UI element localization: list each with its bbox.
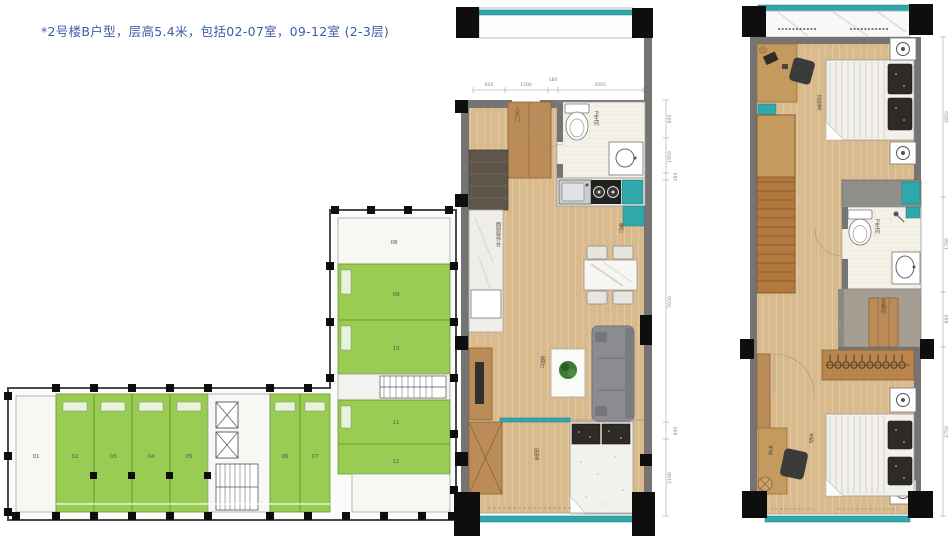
dim-label: 1780	[944, 238, 950, 250]
fridge-icon	[622, 180, 643, 204]
dimension-chain-right: 600 1950 180 5030 600 2190	[663, 100, 679, 516]
chair-icon	[587, 246, 607, 259]
dim-label: 600	[667, 115, 673, 124]
corner-column	[909, 4, 933, 35]
unit-label: 08	[390, 240, 398, 246]
corner-column	[908, 491, 933, 518]
sink-icon	[559, 180, 591, 204]
wardrobe-icon	[469, 422, 502, 494]
desk-label: 书桌	[767, 444, 773, 456]
left-storage-block	[469, 150, 508, 210]
master-bedroom-label: 主卧	[808, 432, 814, 444]
appliance-icon	[902, 182, 920, 204]
unit-label: 07	[311, 454, 319, 460]
sofa-icon	[592, 326, 634, 421]
pillow	[888, 64, 912, 94]
dimension-chain-right: 2850 1780 890 2750	[940, 37, 950, 516]
unit-label: 11	[392, 420, 400, 426]
balcony-glass	[758, 5, 914, 11]
second-bedroom-label: 次卧室	[816, 94, 822, 110]
key-units-02-05: 02 03 04 05	[56, 394, 208, 512]
chair-icon	[613, 246, 633, 259]
unit-label: 09	[392, 292, 400, 298]
unit-label: 12	[392, 459, 399, 465]
bathroom-label: 卫生间	[593, 111, 599, 127]
dim-label: 1500	[520, 82, 532, 88]
dim-label: 180	[549, 77, 558, 83]
unit-label: 02	[71, 454, 78, 460]
top-balcony	[742, 4, 933, 37]
toilet-icon	[565, 104, 589, 140]
chair-icon	[587, 291, 607, 304]
dim-label: 600	[673, 427, 679, 436]
dim-label: 180	[673, 173, 679, 182]
upper-level-plan: 次卧室 卫生间	[738, 2, 952, 536]
dim-label: 2750	[944, 426, 950, 438]
dim-label: 1950	[667, 151, 673, 163]
entry: 入户门	[508, 102, 551, 178]
unit-label: 04	[147, 454, 155, 460]
dim-label: 5030	[667, 296, 673, 308]
key-core	[208, 394, 270, 512]
key-wing: 08 09 10 11 12	[338, 218, 450, 512]
pillow	[572, 424, 600, 444]
dim-label: 3000	[594, 82, 606, 88]
bed-icon	[826, 60, 914, 140]
entry-door-label: 入户门	[514, 107, 520, 123]
stove-icon	[591, 180, 621, 204]
unit-label: 05	[185, 454, 193, 460]
corner-column	[456, 7, 479, 38]
balcony-glass	[765, 516, 910, 522]
chair-icon	[613, 291, 633, 304]
coffee-table	[551, 349, 585, 397]
unit-label: 10	[392, 346, 400, 352]
dim-label: 890	[944, 315, 950, 324]
west-kitchen-counter: 西厨操作台	[469, 210, 503, 332]
wardrobe-icon	[822, 350, 914, 380]
corner-column	[742, 491, 767, 518]
bathroom-label: 卫生间	[874, 219, 880, 235]
corner-room	[352, 474, 450, 512]
toilet-icon	[848, 210, 872, 245]
pillow	[888, 98, 912, 130]
tv-cabinet	[469, 348, 492, 420]
left-wall	[750, 37, 757, 518]
pillow	[888, 457, 912, 485]
corner-column	[632, 492, 655, 536]
pillow	[888, 421, 912, 449]
nightstand-icon	[890, 38, 916, 60]
glass-partition	[500, 418, 570, 422]
unit-label: 03	[109, 454, 117, 460]
bedroom-label: 卧室	[533, 447, 540, 460]
lower-level-plan: 卫生间 入户门 西厨操作	[453, 2, 693, 536]
top-balcony	[456, 7, 653, 38]
closet-area: 衣帽间	[838, 289, 921, 347]
washbasin-icon	[609, 142, 643, 175]
pillow	[602, 424, 630, 444]
balcony-glass	[479, 10, 633, 15]
stairs	[216, 464, 258, 510]
ac-unit-icon	[758, 104, 776, 115]
corner-column	[742, 6, 766, 37]
appliance-icon	[623, 206, 644, 226]
staircase	[757, 115, 795, 293]
key-plan: 01 02 03 04 05	[4, 206, 464, 524]
key-unit-01: 01	[16, 396, 56, 512]
page-title: *2号楼B户型，层高5.4米，包括02-07室，09-12室 (2-3层)	[41, 21, 389, 40]
wing-stairs	[338, 374, 450, 400]
nightstand-icon	[890, 388, 916, 412]
dim-label: 600	[485, 82, 494, 88]
closet-label: 衣帽间	[880, 298, 886, 315]
unit-label: 01	[32, 454, 40, 460]
corner-column	[454, 492, 480, 536]
dim-label: 2850	[944, 111, 950, 123]
corner-column	[632, 8, 653, 38]
key-units-06-07: 06 07	[270, 394, 330, 512]
nightstand-icon	[890, 142, 916, 164]
counter-label: 西厨操作台	[495, 222, 501, 248]
living-label: 客厅	[539, 355, 546, 368]
unit-label: 06	[281, 454, 289, 460]
appliance-icon	[906, 207, 920, 218]
bathroom: 卫生间	[543, 102, 645, 178]
dining-label: 餐厅	[618, 222, 624, 233]
washbasin-icon	[892, 252, 920, 284]
dimension-chain-top: 600 1500 180 3000	[473, 77, 643, 93]
top-wall	[461, 100, 512, 108]
bed-icon	[826, 414, 914, 496]
balcony-glass	[480, 516, 633, 522]
dim-label: 2190	[667, 472, 673, 484]
bed-icon	[570, 422, 633, 514]
